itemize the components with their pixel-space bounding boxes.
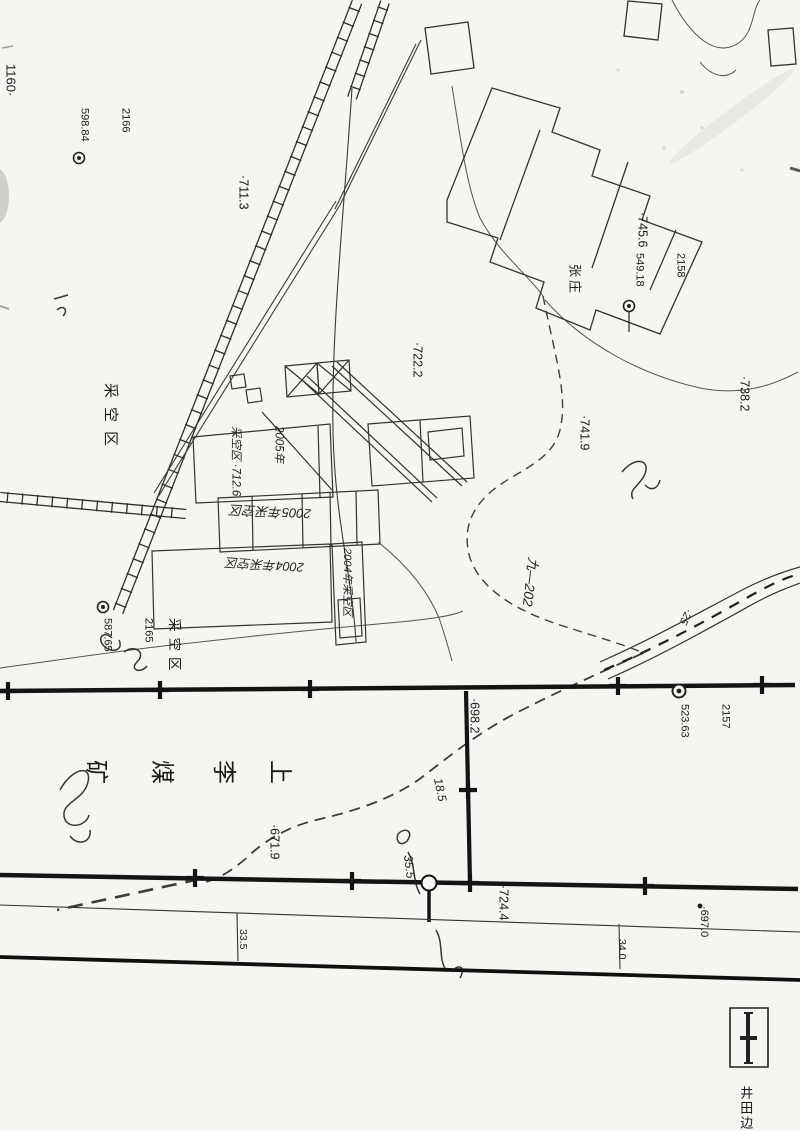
spot-elevation-711: ·711.3 bbox=[235, 175, 251, 210]
village-name: 张庄 bbox=[566, 264, 582, 296]
spot-elevation-741: ·741.9 bbox=[576, 415, 592, 450]
mine-name-char-li: 李 bbox=[208, 760, 238, 784]
benchmark-elevation: 598.84 bbox=[77, 108, 91, 142]
mine-name-char-mei: 煤 bbox=[146, 760, 176, 784]
benchmark-id: 2157 bbox=[718, 704, 732, 738]
spot-elevation-698: ·698.2 bbox=[466, 698, 482, 733]
benchmark-id: 2166 bbox=[118, 108, 132, 142]
benchmark-elevation: 549.18 bbox=[632, 253, 646, 287]
scanned-mine-map: 1160· 2166 598.84 ·711.3 ·745.6 2158 549… bbox=[0, 0, 800, 1131]
spot-elevation-671: ·671.9 bbox=[266, 824, 282, 859]
map-linework bbox=[0, 0, 800, 1131]
goaf-area-label-upper: 采空区 bbox=[100, 383, 119, 455]
spot-elevation-738: ·738.2 bbox=[736, 376, 752, 411]
benchmark-2166-label: 2166 598.84 bbox=[63, 108, 159, 142]
benchmark-2158-label: 2158 549.18 bbox=[618, 253, 714, 287]
benchmark-symbols bbox=[74, 153, 686, 698]
benchmark-elevation: 587.65 bbox=[100, 618, 114, 652]
legend-boundary-symbol bbox=[730, 1008, 768, 1067]
benchmark-id: 2165 bbox=[141, 618, 155, 652]
trail-road-curve bbox=[600, 567, 800, 679]
mine-name-char-kuang: 矿 bbox=[80, 760, 110, 784]
handwritten-2004-goaf-b: 2004年采空区 bbox=[339, 548, 353, 616]
benchmark-elevation: 523.63 bbox=[677, 704, 691, 738]
bottom-road bbox=[0, 904, 800, 980]
road-width-right: 34.0 bbox=[615, 939, 628, 959]
spot-elevation-722: ·722.2 bbox=[409, 342, 425, 377]
road-width-left: 33.5 bbox=[236, 929, 249, 949]
spot-elevation-724: ·724.4 bbox=[495, 885, 511, 920]
legend-boundary-label: 井田边 bbox=[737, 1086, 753, 1131]
benchmark-id: 2158 bbox=[673, 253, 687, 287]
mine-workings-grid bbox=[152, 360, 474, 645]
grid-corner-label: 1160· bbox=[2, 64, 18, 96]
mine-name-char-shang: 上 bbox=[264, 760, 294, 784]
contour-lines bbox=[0, 0, 798, 668]
benchmark-2157-label: 2157 523.63 bbox=[663, 704, 759, 738]
access-road-lines bbox=[154, 40, 421, 642]
handwritten-355: 35.5 bbox=[400, 854, 418, 879]
village-buildings bbox=[425, 1, 796, 334]
spot-elevation-697: ·697.0 bbox=[696, 906, 710, 937]
spot-elevation-745: ·745.6 bbox=[634, 212, 650, 247]
benchmark-2165-label: 2165 587.65 bbox=[86, 618, 182, 652]
handwritten-2005-goaf-panel: 2005年 采空区 ·712.6 bbox=[214, 426, 315, 496]
